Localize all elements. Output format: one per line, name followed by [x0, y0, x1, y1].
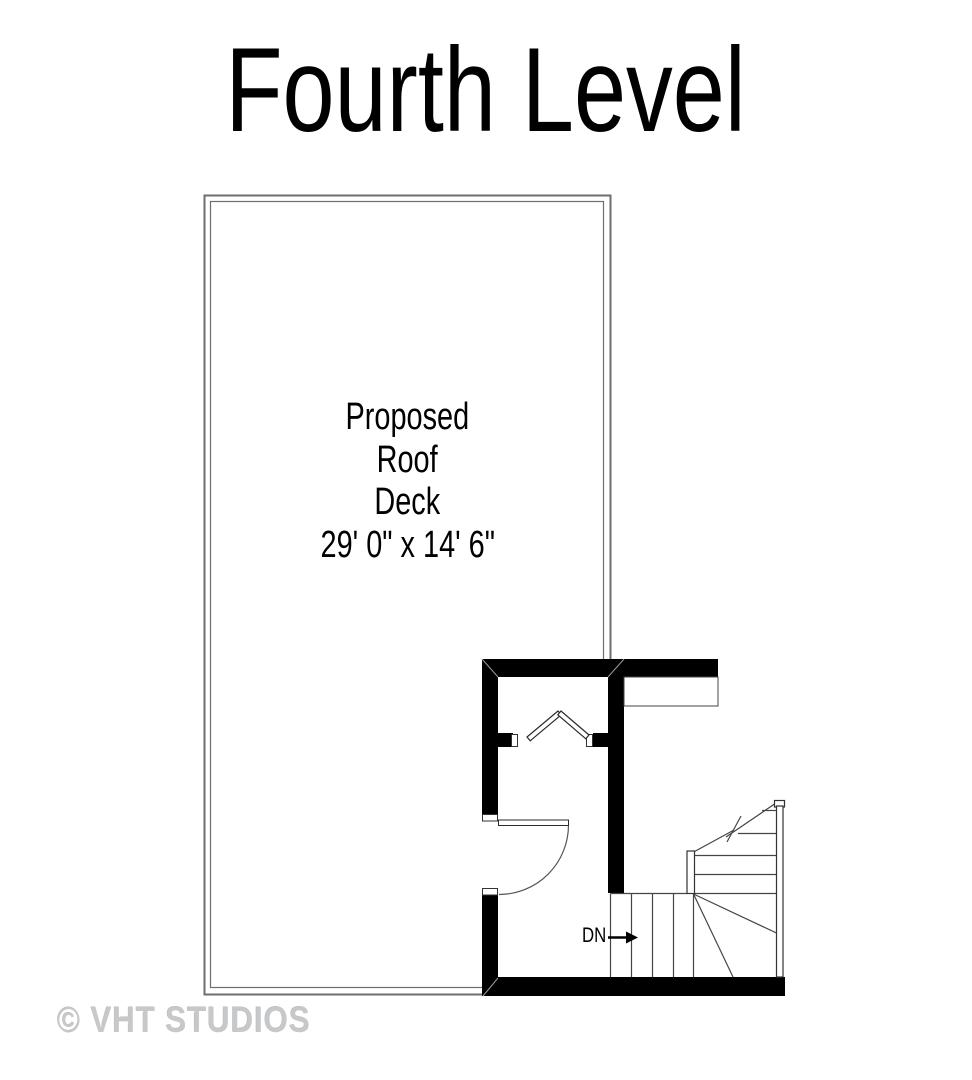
stair-enclosure-floor	[498, 659, 790, 997]
room-label-text: Proposed	[346, 396, 470, 439]
room-label-line: Roof	[204, 439, 611, 482]
wall-top	[482, 659, 718, 677]
room-label-line: Proposed	[204, 396, 611, 439]
room-dimensions: 29' 0" x 14' 6"	[204, 524, 611, 567]
roof-ledge	[624, 677, 718, 706]
jamb-cap	[512, 735, 518, 747]
jamb-cap	[483, 815, 498, 822]
wall-stub-left	[498, 733, 513, 747]
jamb-cap	[483, 889, 498, 896]
watermark-text: © VHT STUDIOS	[57, 1002, 311, 1038]
stair-direction-label: DN	[575, 925, 613, 946]
door-leaf	[499, 820, 569, 826]
room-label-text: Roof	[377, 439, 438, 482]
room-label-text: Deck	[375, 481, 441, 524]
room-label: Proposed Roof Deck 29' 0" x 14' 6"	[204, 396, 611, 566]
room-dimensions-text: 29' 0" x 14' 6"	[320, 524, 494, 567]
wall-left-upper	[482, 659, 498, 815]
wall-stub-right	[593, 733, 608, 747]
wall-middle	[608, 659, 624, 893]
stair-rail	[777, 806, 784, 977]
floor-plan-page: Fourth Level	[0, 0, 972, 1080]
stair-newel-post	[687, 851, 695, 894]
room-label-line: Deck	[204, 481, 611, 524]
wall-bottom	[482, 977, 785, 996]
watermark: © VHT STUDIOS	[57, 1002, 349, 1038]
stair-direction-text: DN	[582, 925, 606, 946]
